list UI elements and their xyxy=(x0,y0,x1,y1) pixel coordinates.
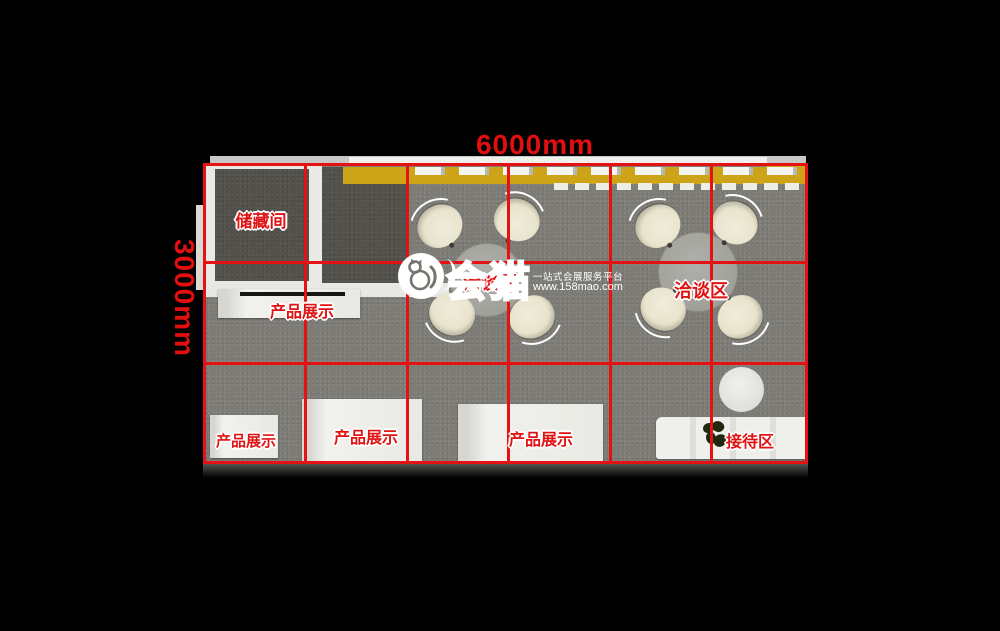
product-display-label: 产品展示 xyxy=(252,298,352,322)
product-display-label: 产品展示 xyxy=(491,426,591,450)
small-round-table xyxy=(719,367,764,412)
grid-line xyxy=(203,163,206,464)
reception-label: 接待区 xyxy=(700,428,800,452)
dimension-width-label: 6000mm xyxy=(455,129,615,161)
chair xyxy=(410,196,471,255)
product-display-label: 产品展示 xyxy=(196,430,296,451)
grid-line xyxy=(203,461,808,464)
dimension-height-label: 3000mm xyxy=(168,233,200,363)
watermark-url: www.158mao.com xyxy=(533,281,623,293)
grid-line xyxy=(710,163,713,464)
counter-black-strip xyxy=(240,292,345,296)
grid-line xyxy=(203,163,808,166)
grid-line xyxy=(805,163,808,464)
watermark-brand: 会猫 xyxy=(446,248,532,308)
grid-line xyxy=(507,163,510,464)
grid-line xyxy=(406,163,409,464)
booth-floor: 储藏间 产品展示 洽谈区 洽谈区 产品展示 产品展示 产品展示 接待区 xyxy=(203,163,808,464)
storage-label: 储藏间 xyxy=(211,207,311,232)
booth-shadow xyxy=(203,464,808,478)
floorplan-canvas: 6000mm 3000mm xyxy=(0,0,1000,631)
chair xyxy=(487,191,546,249)
cat-logo-icon xyxy=(398,253,444,299)
product-display-label: 产品展示 xyxy=(316,424,416,448)
negotiation-label-right: 洽谈区 xyxy=(651,277,751,303)
storage-annex-floor xyxy=(322,167,409,285)
grid-line xyxy=(609,163,612,464)
grid-line xyxy=(203,362,808,365)
wall-display-blocks xyxy=(554,183,806,190)
